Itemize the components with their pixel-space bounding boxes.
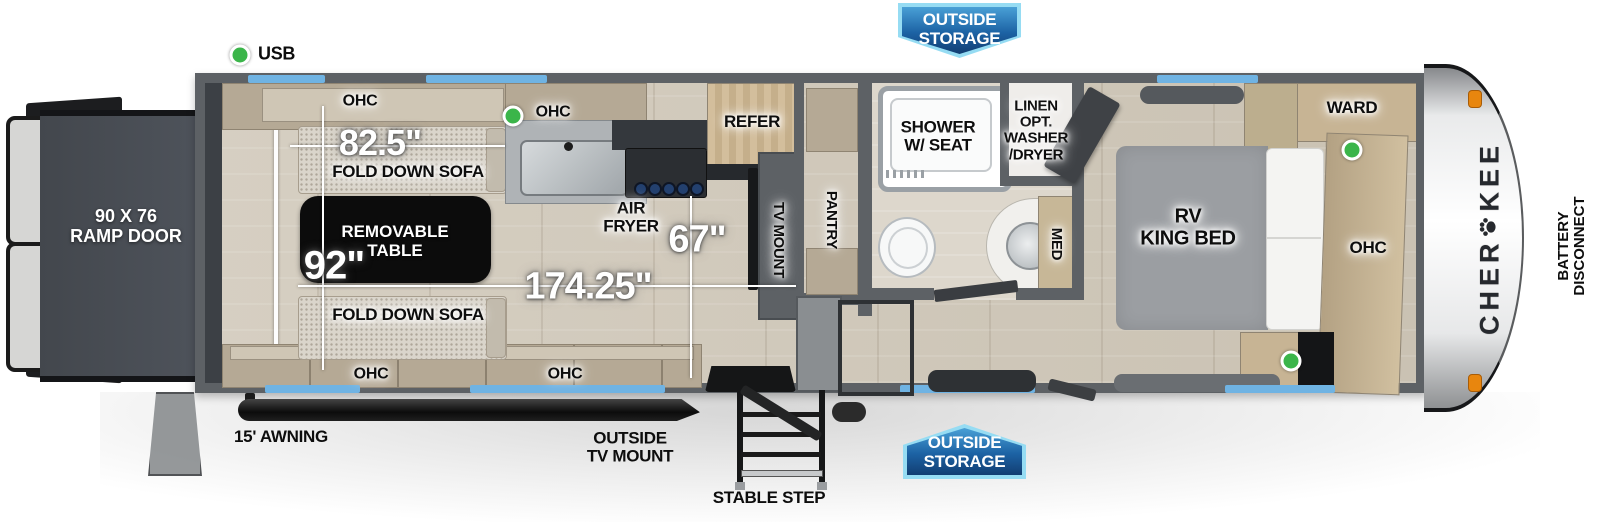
wardrobe-label: WARD xyxy=(1327,99,1378,117)
bed-pillow-divider xyxy=(1267,237,1321,239)
ohc-label-kitchen: OHC xyxy=(536,103,571,120)
linen-line4: /DRYER xyxy=(1004,147,1068,163)
brand-prefix: CHER xyxy=(1475,239,1506,336)
linen-label: LINEN OPT. WASHER /DRYER xyxy=(1004,99,1068,164)
usb-indicator-icon xyxy=(230,45,251,66)
window-strip xyxy=(1157,75,1258,83)
step-rung xyxy=(741,470,823,477)
pantry-shelf-bottom xyxy=(806,248,858,295)
window-strip xyxy=(248,75,325,83)
linen-line2: OPT. xyxy=(1004,115,1068,131)
usb-legend-label: USB xyxy=(258,44,295,63)
stabilizer-jack-rear xyxy=(148,392,202,476)
air-fryer-line2: FRYER xyxy=(603,218,659,236)
removable-table-line1: REMOVABLE xyxy=(325,222,465,241)
refrigerator-label: REFER xyxy=(724,113,780,131)
badge-bottom-line1: OUTSIDE xyxy=(928,433,1001,452)
window-strip xyxy=(470,385,665,393)
badge-text: OUTSIDE STORAGE xyxy=(907,428,1022,475)
dim-garage-width: 92" xyxy=(304,244,364,289)
badge-top-line2: STORAGE xyxy=(919,29,1001,48)
kitchen-top-cabinet xyxy=(505,83,647,123)
battery-disconnect-label: BATTERY DISCONNECT xyxy=(1556,196,1588,295)
dimension-line-garage-width xyxy=(322,106,324,370)
pantry-label: PANTRY xyxy=(823,191,839,249)
fold-down-sofa-bottom-armrest xyxy=(486,298,506,358)
shower-drain-grate-icon xyxy=(886,170,924,178)
burner-icon-2 xyxy=(648,182,662,196)
window-strip xyxy=(265,385,360,393)
usb-indicator-icon xyxy=(1281,351,1302,372)
air-fryer-line1: AIR xyxy=(603,200,659,218)
ramp-threshold-strip xyxy=(274,118,278,360)
shower-label: SHOWER W/ SEAT xyxy=(901,119,976,156)
fold-down-sofa-bottom-label: FOLD DOWN SOFA xyxy=(332,306,484,324)
entry-wall-chase xyxy=(796,296,842,392)
ramp-opening-frame xyxy=(205,83,222,383)
ohc-label-bottom-rear: OHC xyxy=(354,365,389,382)
burner-icon-4 xyxy=(676,182,690,196)
kitchen-dark-countertop xyxy=(612,120,708,150)
outside-storage-badge-top: OUTSIDE STORAGE xyxy=(898,3,1021,58)
rv-king-bed-label: RV KING BED xyxy=(1140,206,1235,249)
pantry-wall-left xyxy=(794,83,804,316)
burner-icon-3 xyxy=(662,182,676,196)
bed-pillows xyxy=(1266,148,1324,330)
bedroom-top-trim xyxy=(1140,86,1244,104)
linen-line3: WASHER xyxy=(1004,131,1068,147)
battery-line2: DISCONNECT xyxy=(1572,196,1588,295)
bed-line2: KING BED xyxy=(1140,228,1235,250)
shower-line1: SHOWER xyxy=(901,119,976,137)
stable-step xyxy=(733,390,832,490)
outside-tv-line2: TV MOUNT xyxy=(587,448,673,466)
step-motor-housing xyxy=(832,402,866,422)
marker-light-icon xyxy=(1468,90,1482,108)
paw-icon xyxy=(1478,218,1503,238)
burner-icon-5 xyxy=(690,182,704,196)
marker-light-icon xyxy=(1468,374,1482,392)
kitchen-faucet-icon xyxy=(564,142,573,151)
brand-logo: CHER KEE xyxy=(1475,141,1506,335)
usb-indicator-icon xyxy=(1342,140,1363,161)
ramp-door-label-line2: RAMP DOOR xyxy=(56,226,196,246)
brand-suffix: KEE xyxy=(1475,141,1506,212)
air-fryer-label: AIR FRYER xyxy=(603,200,659,237)
pantry-shelf-top xyxy=(806,88,858,152)
med-label: MED xyxy=(1048,228,1064,260)
garage-top-cabinet-face xyxy=(262,88,504,122)
wardrobe-left-block xyxy=(1244,83,1298,152)
bath-wall-bottom-left xyxy=(866,288,934,300)
burner-icon-1 xyxy=(634,182,648,196)
window-strip xyxy=(426,75,547,83)
badge-bottom-line2: STORAGE xyxy=(924,452,1006,471)
bedroom-bottom-tv xyxy=(1298,332,1334,386)
shower-line2: W/ SEAT xyxy=(901,137,976,155)
awning-label: 15' AWNING xyxy=(234,428,328,446)
outside-tv-line1: OUTSIDE xyxy=(587,430,673,448)
awning-roll xyxy=(238,399,700,421)
ohc-label-garage-top: OHC xyxy=(343,92,378,109)
toilet-seat xyxy=(888,227,928,269)
badge-top-line1: OUTSIDE xyxy=(923,10,996,29)
dim-cargo-length: 174.25" xyxy=(524,266,651,309)
dim-sofa-length: 82.5" xyxy=(339,122,421,164)
fold-down-sofa-top-label: FOLD DOWN SOFA xyxy=(332,163,484,181)
tv-icon xyxy=(748,168,758,290)
usb-indicator-icon xyxy=(503,106,524,127)
tv-mount-label: TV MOUNT xyxy=(770,202,786,278)
ohc-label-bedroom: OHC xyxy=(1350,239,1387,257)
fold-down-sofa-top-armrest xyxy=(486,128,506,192)
ramp-door-label: 90 X 76 RAMP DOOR xyxy=(56,206,196,246)
window-strip xyxy=(1225,385,1335,393)
badge-text: OUTSIDE STORAGE xyxy=(902,7,1017,54)
dim-aisle: 67" xyxy=(668,219,725,262)
battery-line1: BATTERY xyxy=(1556,196,1572,295)
outside-storage-tray xyxy=(928,370,1036,392)
pantry-wall-right xyxy=(858,83,872,316)
outside-storage-badge-bottom: OUTSIDE STORAGE xyxy=(903,424,1026,479)
ohc-label-bottom-mid: OHC xyxy=(548,365,583,382)
linen-line1: LINEN xyxy=(1004,99,1068,115)
entry-door-curtain xyxy=(838,300,914,396)
stable-step-label: STABLE STEP xyxy=(713,489,826,507)
ramp-door-label-line1: 90 X 76 xyxy=(56,206,196,226)
floorplan-canvas: 90 X 76 RAMP DOOR xyxy=(0,0,1600,531)
bed-line1: RV xyxy=(1140,206,1235,228)
outside-tv-mount-label: OUTSIDE TV MOUNT xyxy=(587,430,673,467)
step-rung xyxy=(741,452,821,457)
